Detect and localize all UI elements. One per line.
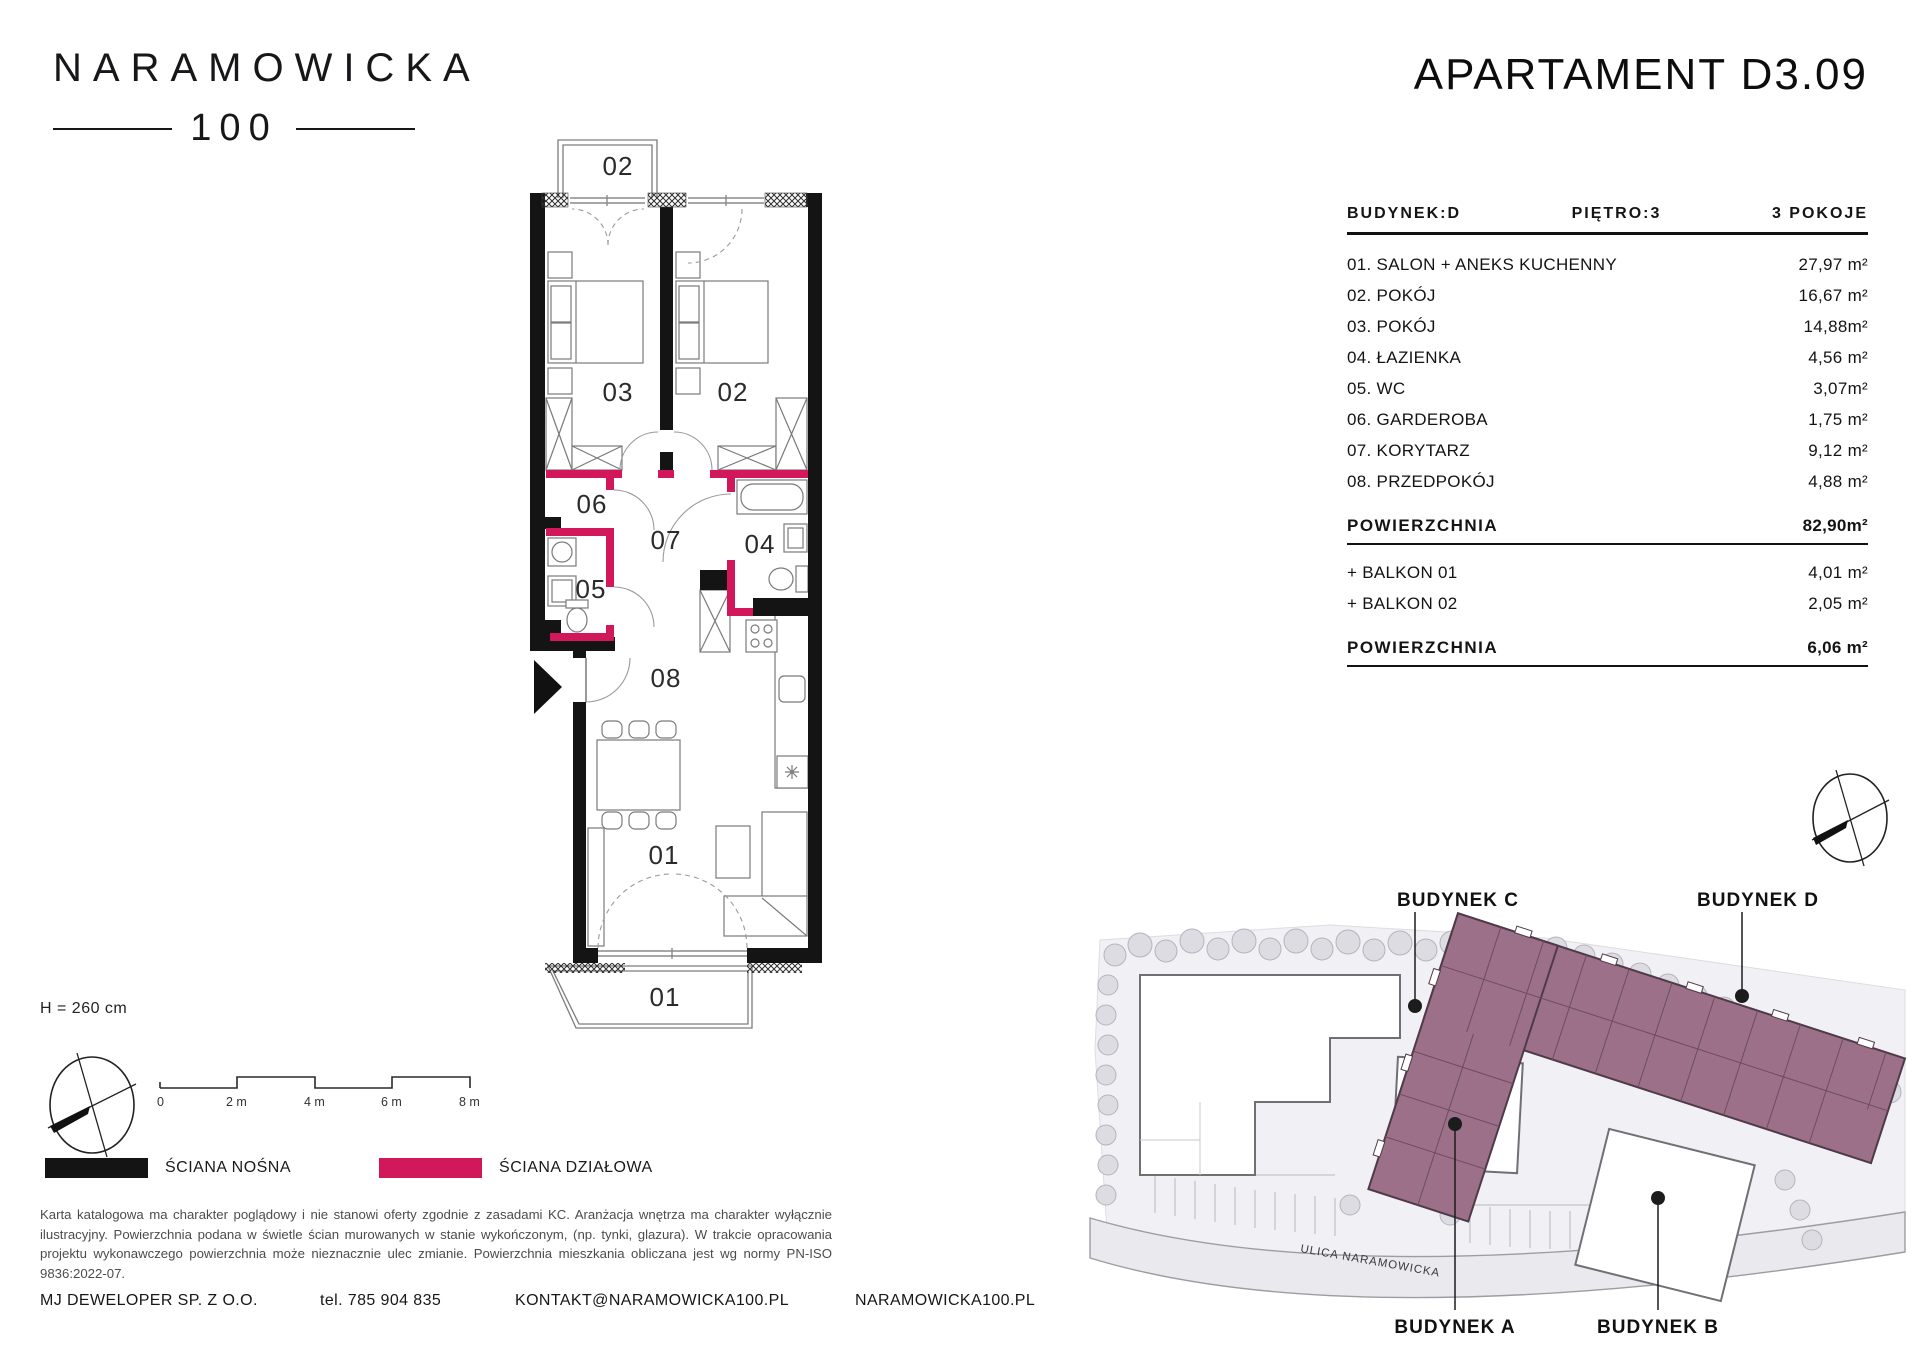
- brand-name: NARAMOWICKA: [53, 46, 415, 91]
- table-row: 04. ŁAZIENKA4,56 m²: [1347, 342, 1868, 373]
- chair: [602, 812, 622, 829]
- room-label: 04. ŁAZIENKA: [1347, 348, 1461, 368]
- compass-icon: [40, 1050, 150, 1165]
- room-02-label: 02: [718, 377, 749, 407]
- pillow: [551, 323, 571, 359]
- chair: [629, 721, 649, 738]
- room-label: 01. SALON + ANEKS KUCHENNY: [1347, 255, 1617, 275]
- room-area: 9,12 m²: [1808, 441, 1868, 461]
- table-row: 05. WC3,07m²: [1347, 373, 1868, 404]
- chair: [602, 721, 622, 738]
- unit-summary-table: BUDYNEK:D PIĘTRO:3 3 POKOJE 01. SALON + …: [1347, 205, 1868, 667]
- pillow: [551, 286, 571, 322]
- room-area: 16,67 m²: [1799, 286, 1869, 306]
- table-row: 07. KORYTARZ9,12 m²: [1347, 435, 1868, 466]
- chair: [656, 812, 676, 829]
- total-area-row: POWIERZCHNIA 82,90m²: [1347, 509, 1868, 545]
- room-area: 3,07m²: [1813, 379, 1868, 399]
- chair: [629, 812, 649, 829]
- brand-logo: NARAMOWICKA 100: [53, 46, 415, 150]
- room-labels: 02 03 02 06 05 07 04 08 01 01: [576, 151, 776, 1012]
- entrance-arrow-icon: [534, 660, 562, 714]
- scale-tick-4m: 4 m: [304, 1095, 325, 1109]
- nightstand: [548, 368, 572, 394]
- chair: [656, 721, 676, 738]
- room-area: 4,88 m²: [1808, 472, 1868, 492]
- room-03-label: 03: [603, 377, 634, 407]
- site-compass-icon: [1812, 770, 1889, 866]
- room-04-label: 04: [745, 529, 776, 559]
- room-07-label: 07: [651, 525, 682, 555]
- nightstand: [548, 252, 572, 278]
- brand-number: 100: [172, 107, 295, 150]
- toilet: [769, 568, 793, 590]
- balcony-area: 4,01 m²: [1808, 563, 1868, 583]
- nightstand: [676, 252, 700, 278]
- room-label: 02. POKÓJ: [1347, 286, 1436, 306]
- balcony-rows: + BALKON 014,01 m² + BALKON 022,05 m²: [1347, 557, 1868, 619]
- logo-rule-right: [296, 128, 415, 130]
- nightstand: [676, 368, 700, 394]
- partition-label: ŚCIANA DZIAŁOWA: [499, 1159, 653, 1177]
- room-01-label: 01: [649, 840, 680, 870]
- dining-table: [597, 740, 680, 810]
- load-bearing-swatch: [45, 1158, 148, 1178]
- building-c-label: BUDYNEK C: [1397, 890, 1519, 911]
- sofa: [762, 812, 807, 898]
- room-06-label: 06: [577, 489, 608, 519]
- room-label: 08. PRZEDPOKÓJ: [1347, 472, 1495, 492]
- table-row: + BALKON 022,05 m²: [1347, 588, 1868, 619]
- balcony-total-area: 6,06 m²: [1807, 638, 1868, 658]
- room-label: 03. POKÓJ: [1347, 317, 1436, 337]
- floor-label: PIĘTRO:3: [1572, 205, 1662, 223]
- balcony-label: + BALKON 02: [1347, 594, 1458, 614]
- scale-tick-2m: 2 m: [226, 1095, 247, 1109]
- balcony-02-label: 02: [603, 151, 634, 181]
- pillow: [679, 286, 699, 322]
- balcony-area: 2,05 m²: [1808, 594, 1868, 614]
- table-row: 03. POKÓJ14,88m²: [1347, 311, 1868, 342]
- floor-plan: 02 03 02 06 05 07 04 08 01 01: [515, 130, 845, 1040]
- wall-legend: ŚCIANA NOŚNA ŚCIANA DZIAŁOWA: [45, 1158, 705, 1178]
- sofa-chaise: [724, 896, 807, 936]
- footer-phone: tel. 785 904 835: [320, 1292, 441, 1310]
- fridge-icon: [785, 765, 799, 779]
- room-label: 06. GARDEROBA: [1347, 410, 1488, 430]
- balcony-total-row: POWIERZCHNIA 6,06 m²: [1347, 631, 1868, 667]
- footer-website: NARAMOWICKA100.PL: [855, 1292, 1035, 1310]
- table-row: + BALKON 014,01 m²: [1347, 557, 1868, 588]
- building-d-label: BUDYNEK D: [1697, 890, 1819, 911]
- footer-company: MJ DEWELOPER SP. Z O.O.: [40, 1292, 258, 1310]
- partition-swatch: [379, 1158, 482, 1178]
- table-row: 02. POKÓJ16,67 m²: [1347, 280, 1868, 311]
- room-08-label: 08: [651, 663, 682, 693]
- load-bearing-label: ŚCIANA NOŚNA: [165, 1159, 291, 1177]
- building-b-label: BUDYNEK B: [1597, 1317, 1719, 1338]
- total-label: POWIERZCHNIA: [1347, 516, 1498, 536]
- ceiling-height-note: H = 260 cm: [40, 1000, 127, 1018]
- pillow: [679, 323, 699, 359]
- footer-email: KONTAKT@NARAMOWICKA100.PL: [515, 1292, 789, 1310]
- insulation-hatch-top: [542, 193, 807, 207]
- room-area: 1,75 m²: [1808, 410, 1868, 430]
- balcony-01-label: 01: [650, 982, 681, 1012]
- room-label: 05. WC: [1347, 379, 1405, 399]
- room-area: 27,97 m²: [1799, 255, 1869, 275]
- disclaimer-text: Karta katalogowa ma charakter poglądowy …: [40, 1205, 832, 1283]
- unit-table-header: BUDYNEK:D PIĘTRO:3 3 POKOJE: [1347, 205, 1868, 235]
- building-a-label: BUDYNEK A: [1394, 1317, 1515, 1338]
- building-label: BUDYNEK:D: [1347, 205, 1461, 223]
- table-row: 01. SALON + ANEKS KUCHENNY27,97 m²: [1347, 249, 1868, 280]
- room-rows: 01. SALON + ANEKS KUCHENNY27,97 m² 02. P…: [1347, 249, 1868, 497]
- room-05-label: 05: [576, 574, 607, 604]
- balcony-label: + BALKON 01: [1347, 563, 1458, 583]
- scale-tick-8m: 8 m: [459, 1095, 480, 1109]
- page-title: APARTAMENT D3.09: [1414, 50, 1868, 100]
- scale-tick-6m: 6 m: [381, 1095, 402, 1109]
- coffee-table: [716, 826, 750, 878]
- room-label: 07. KORYTARZ: [1347, 441, 1470, 461]
- toilet-tank: [796, 566, 808, 592]
- balcony-total-label: POWIERZCHNIA: [1347, 638, 1498, 658]
- table-row: 08. PRZEDPOKÓJ4,88 m²: [1347, 466, 1868, 497]
- room-area: 4,56 m²: [1808, 348, 1868, 368]
- sideboard: [588, 828, 604, 946]
- scale-tick-0: 0: [157, 1095, 164, 1109]
- toilet: [567, 608, 587, 632]
- scale-bar: 0 2 m 4 m 6 m 8 m: [145, 1058, 495, 1113]
- insulation-hatch: [747, 963, 802, 973]
- room-area: 14,88m²: [1804, 317, 1868, 337]
- site-plan: BUDYNEK C BUDYNEK D BUDYNEK A BUDYNEK B …: [1060, 690, 1920, 1350]
- rooms-count-label: 3 POKOJE: [1772, 205, 1868, 223]
- total-area: 82,90m²: [1803, 516, 1868, 536]
- logo-rule-left: [53, 128, 172, 130]
- kitchen-sink: [779, 676, 805, 702]
- insulation-hatch: [545, 963, 625, 973]
- table-row: 06. GARDEROBA1,75 m²: [1347, 404, 1868, 435]
- stove: [746, 620, 777, 652]
